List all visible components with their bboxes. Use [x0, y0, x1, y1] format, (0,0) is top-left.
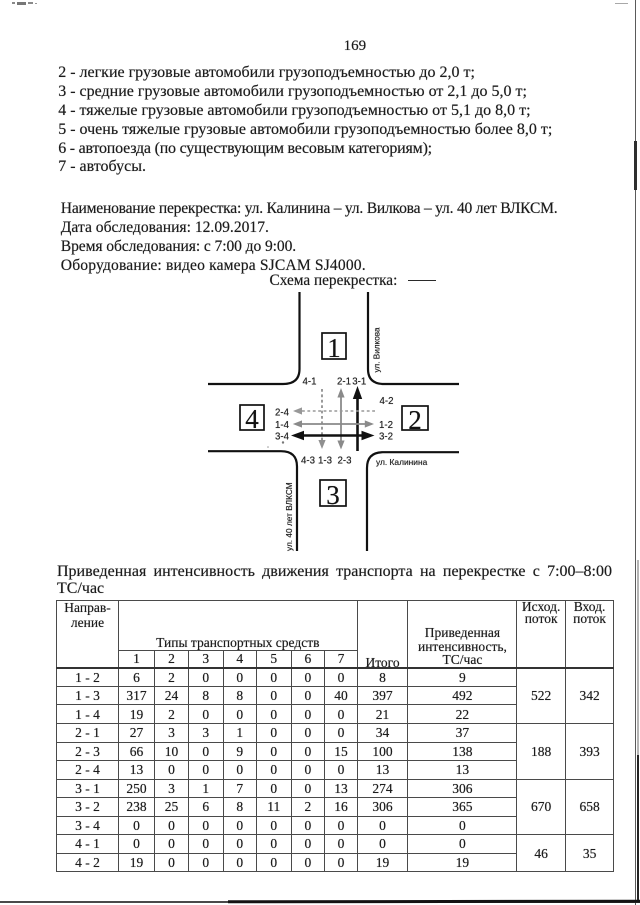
svg-text:1-3: 1-3 — [318, 456, 332, 467]
svg-text:ул. Калинина: ул. Калинина — [376, 457, 428, 467]
svg-text:ул. 40 лет ВЛКСМ: ул. 40 лет ВЛКСМ — [284, 482, 294, 551]
svg-text:4-3: 4-3 — [301, 456, 315, 467]
svg-text:4: 4 — [245, 404, 259, 434]
svg-text:3-1: 3-1 — [352, 377, 366, 388]
svg-text:2-4: 2-4 — [275, 408, 289, 419]
svg-text:3-2: 3-2 — [379, 432, 393, 443]
svg-text:1-2: 1-2 — [379, 420, 393, 431]
svg-text:4-1: 4-1 — [303, 377, 317, 388]
svg-text:3-4: 3-4 — [275, 432, 289, 443]
svg-text:2: 2 — [408, 405, 422, 435]
svg-text:4-2: 4-2 — [380, 396, 394, 407]
svg-text:2-1: 2-1 — [337, 377, 351, 388]
svg-text:3: 3 — [326, 480, 340, 510]
svg-text:1: 1 — [327, 333, 341, 363]
svg-text:2-3: 2-3 — [338, 456, 352, 467]
svg-text:ул. Вилкова: ул. Вилкова — [373, 327, 382, 373]
svg-text:1-4: 1-4 — [275, 420, 289, 431]
